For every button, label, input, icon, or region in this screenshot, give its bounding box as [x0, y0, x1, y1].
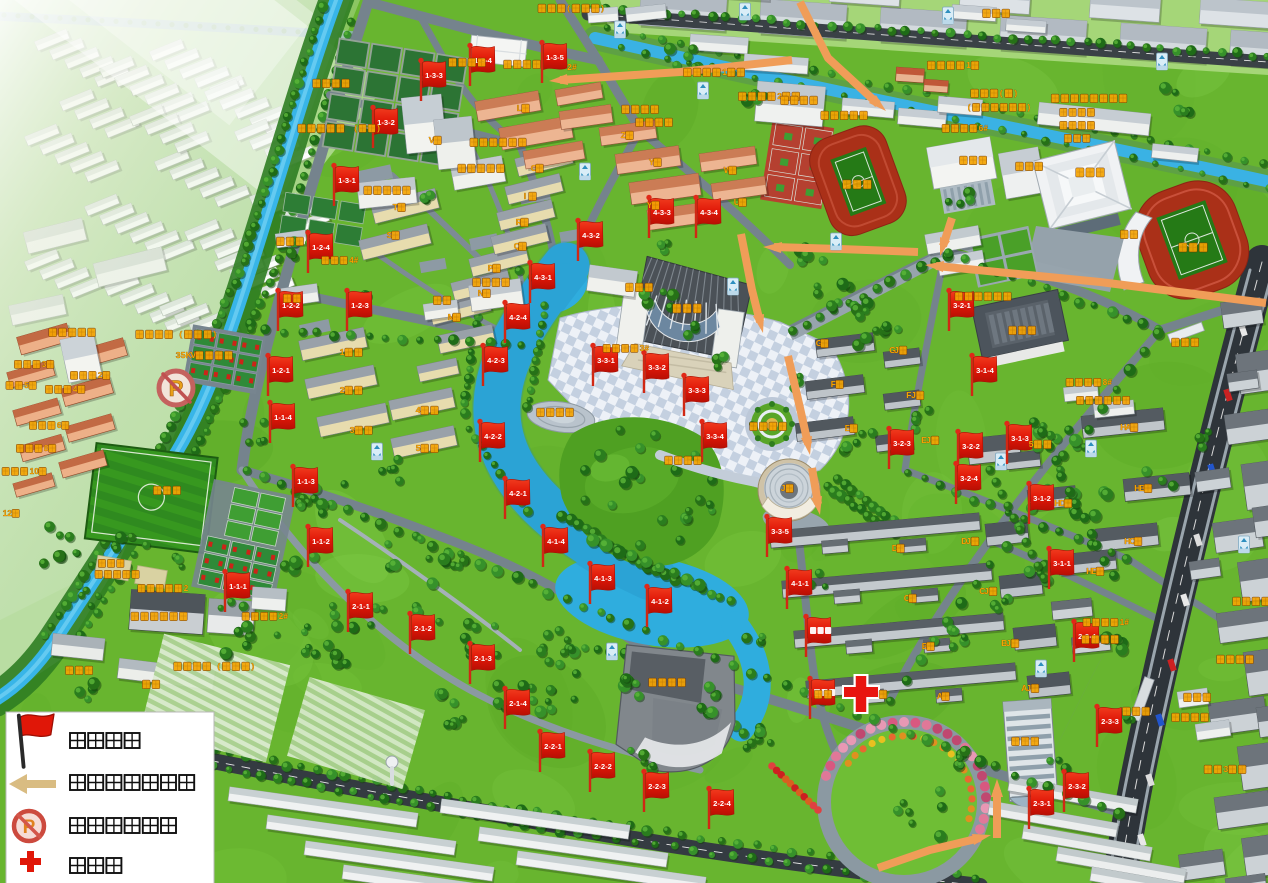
svg-text:4-2-4: 4-2-4	[509, 313, 528, 322]
svg-text:5: 5	[416, 443, 421, 453]
svg-text:3-1-2: 3-1-2	[1033, 494, 1051, 503]
svg-text:4-3-2: 4-3-2	[582, 231, 600, 240]
svg-text:(: (	[354, 124, 357, 133]
svg-text:F: F	[831, 379, 836, 389]
svg-text:4-2-2: 4-2-2	[484, 432, 502, 441]
svg-text:(: (	[968, 103, 971, 112]
svg-text:1-2-4: 1-2-4	[312, 243, 331, 252]
svg-text:1-3-1: 1-3-1	[338, 176, 357, 185]
svg-text:2-2-2: 2-2-2	[594, 762, 612, 771]
svg-text:2-1-1: 2-1-1	[352, 602, 371, 611]
svg-text:4-1-1: 4-1-1	[791, 579, 810, 588]
svg-text:2-2-1: 2-2-1	[544, 742, 563, 751]
svg-text:#: #	[572, 62, 577, 72]
svg-text:3-2-2: 3-2-2	[962, 442, 980, 451]
svg-text:#: #	[1107, 378, 1112, 387]
svg-text:Z: Z	[621, 130, 626, 140]
svg-text:1: 1	[966, 60, 971, 70]
svg-text:J: J	[894, 345, 899, 355]
svg-text:J: J	[1026, 683, 1031, 693]
svg-text:1-2-1: 1-2-1	[272, 366, 291, 375]
svg-text:1-3-3: 1-3-3	[425, 71, 443, 80]
svg-text:#: #	[354, 256, 359, 265]
svg-text:): )	[1028, 103, 1031, 112]
svg-text:I: I	[524, 191, 526, 201]
svg-text:4-2-1: 4-2-1	[509, 489, 528, 498]
svg-text:4-2-3: 4-2-3	[487, 356, 505, 365]
svg-text:2-1-2: 2-1-2	[414, 624, 432, 633]
svg-text:J: J	[926, 435, 931, 445]
svg-text:4-1-3: 4-1-3	[594, 574, 612, 583]
svg-text:4-3-4: 4-3-4	[700, 208, 719, 217]
svg-text:2-3-3: 2-3-3	[1101, 717, 1119, 726]
svg-text:5: 5	[1029, 439, 1034, 449]
svg-text:4-3-1: 4-3-1	[534, 273, 553, 282]
svg-text:J: J	[911, 390, 916, 400]
svg-text:3: 3	[1224, 764, 1229, 774]
svg-text:3: 3	[350, 425, 355, 435]
svg-text:3-3-3: 3-3-3	[688, 386, 706, 395]
svg-text:1: 1	[722, 67, 727, 77]
svg-text:#: #	[283, 612, 288, 621]
svg-text:J: J	[1006, 638, 1011, 648]
svg-text:(: (	[179, 329, 182, 339]
svg-text:0: 0	[34, 467, 39, 476]
svg-text:3: 3	[42, 360, 47, 369]
svg-text:2: 2	[340, 385, 345, 395]
svg-text:8: 8	[44, 444, 49, 453]
svg-text:4: 4	[73, 385, 78, 394]
svg-text:3-3-4: 3-3-4	[706, 432, 725, 441]
svg-text:(: (	[1000, 88, 1003, 98]
svg-text:): )	[1014, 88, 1017, 98]
svg-text:): )	[251, 661, 254, 671]
svg-text:J: J	[781, 483, 786, 493]
svg-text:#: #	[644, 344, 649, 353]
svg-text:1-1-1: 1-1-1	[229, 582, 248, 591]
svg-text:2-3-2: 2-3-2	[1068, 782, 1086, 791]
svg-text:4-1-2: 4-1-2	[651, 597, 669, 606]
svg-text:2-1-3: 2-1-3	[474, 654, 492, 663]
svg-text:2: 2	[98, 371, 103, 380]
svg-text:3-2-1: 3-2-1	[953, 301, 972, 310]
svg-text:1-1-4: 1-1-4	[274, 413, 293, 422]
svg-text:1-1-3: 1-1-3	[297, 477, 315, 486]
svg-text:2-3-1: 2-3-1	[1033, 799, 1052, 808]
svg-text:3-3-2: 3-3-2	[648, 363, 666, 372]
svg-text:1: 1	[340, 347, 345, 357]
svg-text:#: #	[1124, 618, 1129, 627]
svg-text:J: J	[966, 536, 971, 546]
svg-text:4: 4	[416, 405, 421, 415]
svg-text:2: 2	[184, 584, 189, 593]
svg-text:2-2-3: 2-2-3	[648, 782, 666, 791]
svg-text:1-3-5: 1-3-5	[546, 53, 565, 62]
svg-text:(: (	[567, 3, 570, 13]
svg-text:3-1-3: 3-1-3	[1011, 434, 1029, 443]
svg-text:2-2-4: 2-2-4	[713, 799, 732, 808]
svg-text:): )	[213, 329, 216, 339]
svg-text:2: 2	[7, 509, 12, 518]
svg-text:3-1-4: 3-1-4	[976, 366, 995, 375]
svg-text:J: J	[984, 586, 989, 596]
svg-text:L: L	[517, 103, 522, 113]
svg-text:2-1-4: 2-1-4	[509, 699, 528, 708]
svg-text:5: 5	[24, 381, 29, 390]
svg-text:): )	[377, 124, 380, 133]
svg-text:3-1-1: 3-1-1	[1053, 559, 1072, 568]
svg-text:(: (	[217, 661, 220, 671]
svg-text:6: 6	[57, 421, 62, 430]
svg-text:): )	[601, 3, 604, 13]
svg-text:1-2-3: 1-2-3	[351, 301, 369, 310]
svg-text:3-3-1: 3-3-1	[597, 356, 616, 365]
svg-text:4-1-4: 4-1-4	[547, 537, 566, 546]
svg-text:#: #	[983, 124, 988, 133]
svg-text:3-2-4: 3-2-4	[960, 474, 979, 483]
svg-text:3-2-3: 3-2-3	[893, 439, 911, 448]
svg-text:1-1-2: 1-1-2	[312, 537, 330, 546]
svg-text:3-3-5: 3-3-5	[771, 527, 790, 536]
